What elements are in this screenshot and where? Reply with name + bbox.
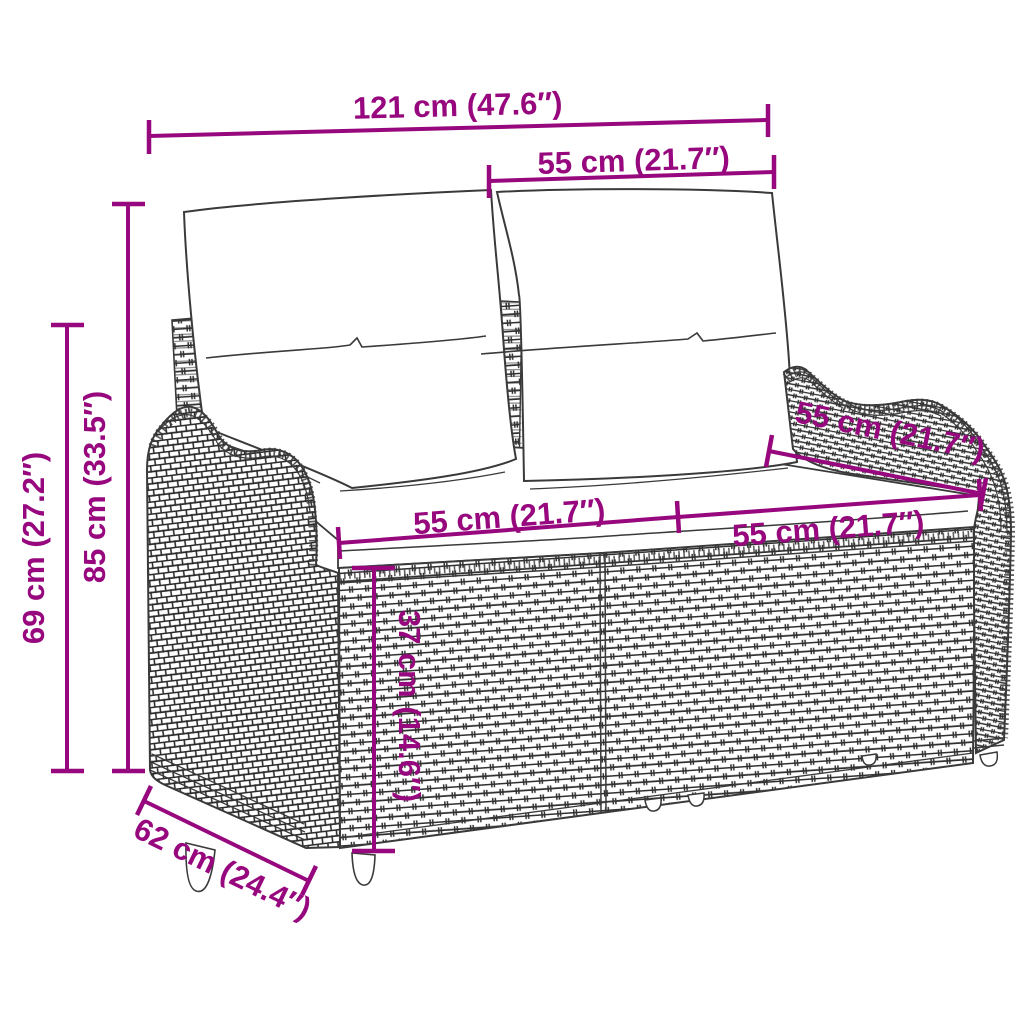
svg-text:37 cm (14.6″): 37 cm (14.6″) bbox=[392, 610, 427, 802]
svg-text:121 cm (47.6″): 121 cm (47.6″) bbox=[353, 85, 563, 125]
svg-text:85 cm (33.5″): 85 cm (33.5″) bbox=[77, 391, 112, 583]
svg-text:55 cm (21.7″): 55 cm (21.7″) bbox=[537, 140, 730, 181]
svg-text:69 cm (27.2″): 69 cm (27.2″) bbox=[16, 452, 51, 644]
